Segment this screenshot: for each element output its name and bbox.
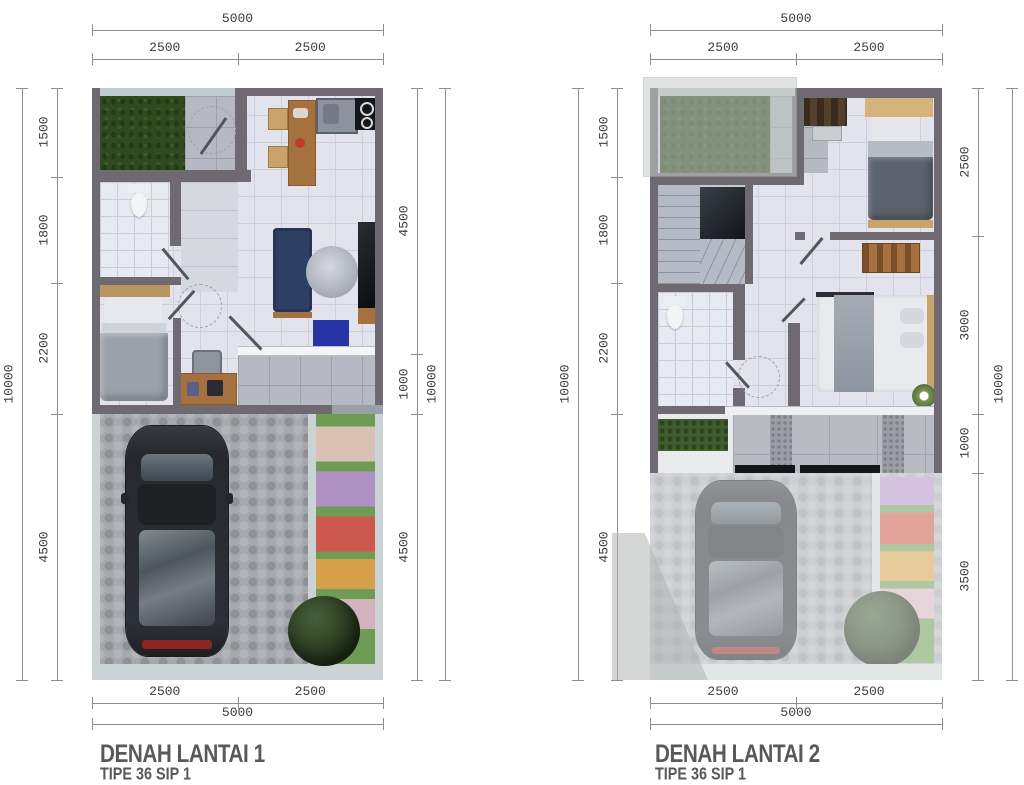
dim-tick xyxy=(611,680,623,681)
wall xyxy=(733,292,745,360)
dim-line xyxy=(22,88,23,680)
dim-tick xyxy=(411,88,423,89)
door-swing-arc xyxy=(178,284,222,328)
dim-tick xyxy=(411,354,423,355)
desk xyxy=(180,373,237,405)
dim-tick xyxy=(650,53,651,65)
floorplan-lantai-1 xyxy=(92,88,383,680)
stair-landing xyxy=(700,187,745,239)
hedge xyxy=(658,419,728,451)
tree xyxy=(288,596,360,666)
dim-tick xyxy=(796,53,797,65)
tv-cabinet xyxy=(358,222,375,308)
bed-pillow xyxy=(104,297,162,323)
dim-label: 2500 xyxy=(149,40,180,55)
dim-tick xyxy=(51,177,63,178)
bed-blanket xyxy=(100,333,168,401)
dim-label: 3000 xyxy=(958,309,973,340)
dim-tick xyxy=(439,88,451,89)
dim-tick xyxy=(16,88,28,89)
balcony-edge-bar xyxy=(800,465,880,473)
dim-tick xyxy=(383,718,384,730)
desk-item xyxy=(187,382,199,396)
wall xyxy=(92,277,181,285)
dim-tick xyxy=(16,680,28,681)
car-hood xyxy=(139,530,214,627)
dim-tick xyxy=(51,88,63,89)
garden-top-edge xyxy=(92,88,235,96)
stove xyxy=(355,98,375,130)
dim-line xyxy=(978,88,979,680)
bed-sheet xyxy=(102,323,166,333)
dim-tick xyxy=(92,718,93,730)
dim-tick xyxy=(572,88,584,89)
dim-line xyxy=(650,30,942,31)
desk-item xyxy=(207,380,223,396)
dim-tick xyxy=(972,88,984,89)
dim-label: 2500 xyxy=(853,40,884,55)
dim-label: 1500 xyxy=(37,117,52,148)
hallway-floor xyxy=(181,182,238,292)
dim-tick xyxy=(411,414,423,415)
car-mirror xyxy=(225,493,233,504)
plate xyxy=(293,108,308,118)
car-windshield xyxy=(141,454,212,482)
dresser xyxy=(862,243,920,273)
bed-headboard xyxy=(927,295,934,392)
potted-plant xyxy=(912,384,936,408)
carport-right-border xyxy=(375,414,383,680)
dim-label: 2500 xyxy=(853,684,884,699)
dim-label: 2200 xyxy=(597,333,612,364)
dim-label: 2500 xyxy=(295,40,326,55)
dim-tick xyxy=(942,53,943,65)
car xyxy=(126,426,228,656)
dim-tick xyxy=(51,414,63,415)
wall xyxy=(745,178,753,284)
dim-label: 5000 xyxy=(780,705,811,720)
carport-left-border xyxy=(92,414,100,680)
dim-line xyxy=(417,88,418,680)
desk-chair xyxy=(812,126,842,141)
dim-label: 1800 xyxy=(37,214,52,245)
dim-label: 1000 xyxy=(958,428,973,459)
dim-label: 5000 xyxy=(780,11,811,26)
wall xyxy=(795,88,942,98)
dim-label: 2500 xyxy=(707,40,738,55)
wall xyxy=(92,405,332,414)
dim-line xyxy=(1012,88,1013,680)
dim-label: 3500 xyxy=(958,561,973,592)
bed-sheet xyxy=(868,141,933,157)
balcony-edge-bar xyxy=(735,465,795,473)
front-garden xyxy=(100,96,185,172)
dim-label: 2500 xyxy=(958,146,973,177)
bed-pillow xyxy=(900,332,924,348)
toilet-tank xyxy=(128,184,150,193)
dim-tick xyxy=(972,236,984,237)
dining-chair xyxy=(268,108,288,130)
wall xyxy=(650,406,725,414)
table-flowers xyxy=(295,138,305,148)
dim-line xyxy=(92,724,383,725)
wall xyxy=(92,88,100,414)
dim-label: 4500 xyxy=(37,531,52,562)
dim-tick xyxy=(942,697,943,709)
wall xyxy=(235,88,383,96)
dim-line xyxy=(92,30,383,31)
balcony-railing xyxy=(725,406,934,415)
wall xyxy=(375,88,383,414)
car-mirror xyxy=(121,493,129,504)
carport-bottom-border xyxy=(92,664,383,680)
wall xyxy=(788,323,800,414)
sofa-base xyxy=(273,312,312,318)
dim-tick xyxy=(611,88,623,89)
dim-tick xyxy=(972,414,984,415)
dim-label: 4500 xyxy=(597,531,612,562)
car-roof xyxy=(138,484,216,525)
wall xyxy=(650,284,745,292)
wall xyxy=(170,182,181,246)
dim-tick xyxy=(439,680,451,681)
bed-pillow xyxy=(900,308,924,324)
dim-tick xyxy=(972,473,984,474)
door-swing-arc xyxy=(188,106,236,154)
terrace-edge-wall xyxy=(332,405,383,414)
dim-line xyxy=(578,88,579,680)
dim-label: 4500 xyxy=(397,206,412,237)
wall xyxy=(92,170,251,182)
dim-tick xyxy=(92,24,93,36)
sink-basin xyxy=(323,104,339,124)
dim-label: 1800 xyxy=(597,214,612,245)
dim-tick xyxy=(238,53,239,65)
bed-pillow xyxy=(872,117,920,141)
dim-label: 1000 xyxy=(397,368,412,399)
floorplan-sheet: { "page": { "background": "#ffffff" }, "… xyxy=(0,0,1024,768)
dim-tick xyxy=(650,718,651,730)
dim-tick xyxy=(92,53,93,65)
dim-label: 10000 xyxy=(992,364,1007,403)
dim-tick xyxy=(383,24,384,36)
dim-label: 1500 xyxy=(597,117,612,148)
stair-treads xyxy=(658,185,700,284)
dim-label: 2500 xyxy=(149,684,180,699)
floorplan-lantai-2 xyxy=(650,88,942,680)
dim-label: 10000 xyxy=(558,364,573,403)
dim-tick xyxy=(1006,88,1018,89)
tv-shelf xyxy=(358,308,375,324)
door-swing-arc xyxy=(738,356,780,398)
dim-tick xyxy=(51,680,63,681)
dim-label: 4500 xyxy=(397,531,412,562)
dim-tick xyxy=(1006,680,1018,681)
bed-headboard xyxy=(865,98,933,117)
dim-tick xyxy=(383,53,384,65)
dim-label: 10000 xyxy=(425,364,440,403)
dim-tick xyxy=(611,177,623,178)
burner xyxy=(361,117,373,129)
desk xyxy=(803,98,847,126)
dim-tick xyxy=(972,680,984,681)
dim-tick xyxy=(572,680,584,681)
dim-tick xyxy=(942,24,943,36)
dim-tick xyxy=(650,24,651,36)
bed-frame xyxy=(868,220,933,228)
wall xyxy=(173,318,181,414)
wall xyxy=(934,88,942,473)
dim-tick xyxy=(611,414,623,415)
dim-label: 10000 xyxy=(2,364,17,403)
dim-tick xyxy=(383,697,384,709)
dim-label: 2500 xyxy=(707,684,738,699)
bed-headboard xyxy=(100,285,170,297)
pebble-strip xyxy=(882,414,904,473)
dim-label: 5000 xyxy=(222,11,253,26)
roof-slab-overlay xyxy=(644,78,796,176)
dim-tick xyxy=(650,697,651,709)
dim-label: 2200 xyxy=(37,333,52,364)
dim-tick xyxy=(611,283,623,284)
bed-blanket xyxy=(868,157,933,220)
stair-winders xyxy=(700,239,745,284)
car-taillights xyxy=(142,640,211,649)
dim-tick xyxy=(51,283,63,284)
round-rug xyxy=(306,246,358,298)
burner xyxy=(360,102,374,116)
dim-line xyxy=(650,724,942,725)
dim-line xyxy=(445,88,446,680)
dim-tick xyxy=(411,680,423,681)
dining-chair xyxy=(268,146,288,168)
dim-label: 5000 xyxy=(222,705,253,720)
dim-tick xyxy=(92,697,93,709)
dim-label: 2500 xyxy=(295,684,326,699)
toilet-tank xyxy=(664,296,686,305)
wall xyxy=(830,232,942,240)
wall xyxy=(795,232,805,240)
dim-tick xyxy=(942,718,943,730)
bed-runner xyxy=(834,295,874,392)
